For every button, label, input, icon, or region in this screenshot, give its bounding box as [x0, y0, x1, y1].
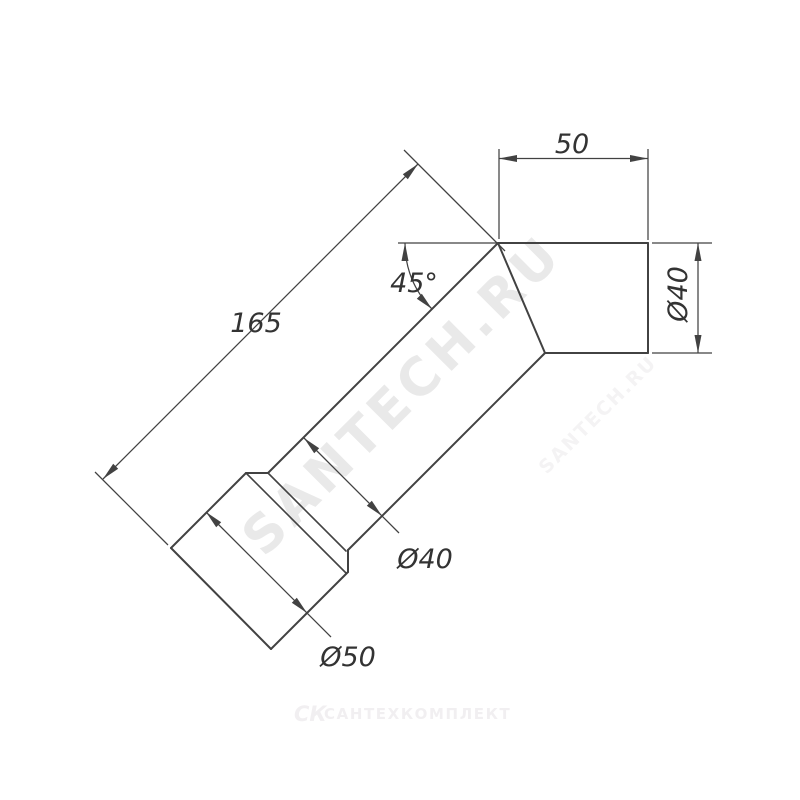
label-outlet-length-50: 50 [555, 129, 589, 160]
socket-end-face [171, 548, 271, 649]
ext-line-165-bottom [95, 472, 168, 545]
socket-lower-edge [271, 572, 348, 649]
footer-logo-text: САНТЕХКОМПЛЕКТ [324, 705, 511, 723]
label-body-diameter-40: Ø40 [396, 544, 453, 575]
arrow-angle-top [402, 243, 409, 261]
elbow-fitting-drawing: SANTECH.RU SANTECH.RU [0, 0, 800, 800]
ext-line-165-top [404, 150, 505, 251]
label-socket-diameter-50: Ø50 [319, 642, 376, 673]
drawing-canvas: SANTECH.RU SANTECH.RU [0, 0, 800, 800]
footer-logo-mark: СК [294, 702, 327, 726]
arrow-50-left [499, 155, 517, 162]
socket-upper-edge [171, 473, 246, 548]
watermark-secondary: SANTECH.RU [535, 352, 662, 479]
footer-logo: СК САНТЕХКОМПЛЕКТ [294, 702, 511, 726]
arrow-dia40-bottom [695, 335, 702, 353]
label-overall-length-165: 165 [230, 308, 282, 339]
label-outlet-diameter-40: Ø40 [663, 266, 694, 323]
arrow-50-right [630, 155, 648, 162]
arrow-dia40-top [695, 243, 702, 261]
label-bend-angle-45: 45° [390, 268, 438, 299]
